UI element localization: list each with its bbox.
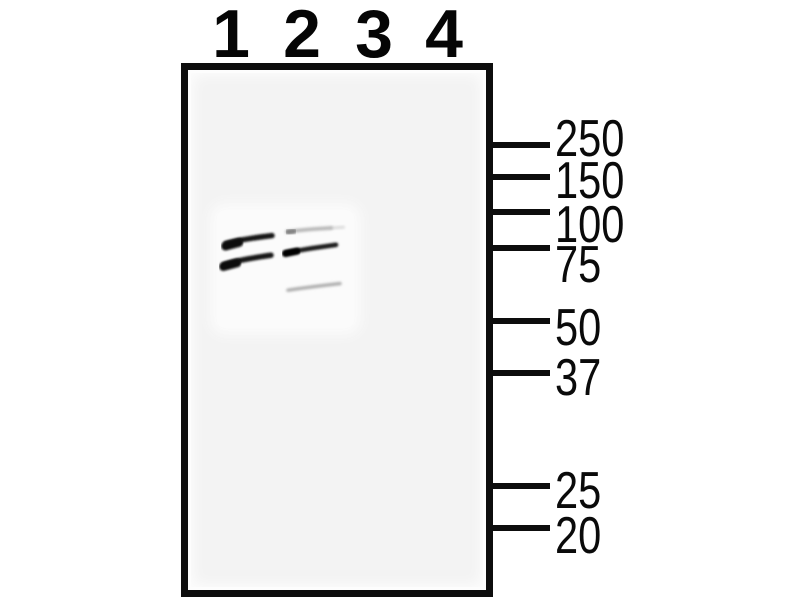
mw-label-75: 75 <box>555 239 601 291</box>
lane-label-1: 1 <box>212 0 250 68</box>
mw-tick-20 <box>489 525 550 531</box>
mw-tick-75 <box>489 245 550 251</box>
blot-membrane <box>181 63 493 597</box>
membrane-highlight-patch <box>217 210 354 328</box>
mw-tick-150 <box>489 174 550 180</box>
mw-label-20: 20 <box>555 510 601 562</box>
mw-tick-100 <box>489 209 550 215</box>
mw-tick-50 <box>489 318 550 324</box>
lane-label-3: 3 <box>355 0 393 68</box>
lane-label-2: 2 <box>283 0 321 68</box>
western-blot-figure: 1234 2501501007550372520 <box>0 0 800 600</box>
mw-tick-250 <box>489 142 550 148</box>
lane-label-4: 4 <box>425 0 463 68</box>
mw-tick-37 <box>489 370 550 376</box>
mw-tick-25 <box>489 483 550 489</box>
mw-label-50: 50 <box>555 302 601 354</box>
mw-label-37: 37 <box>555 352 601 404</box>
